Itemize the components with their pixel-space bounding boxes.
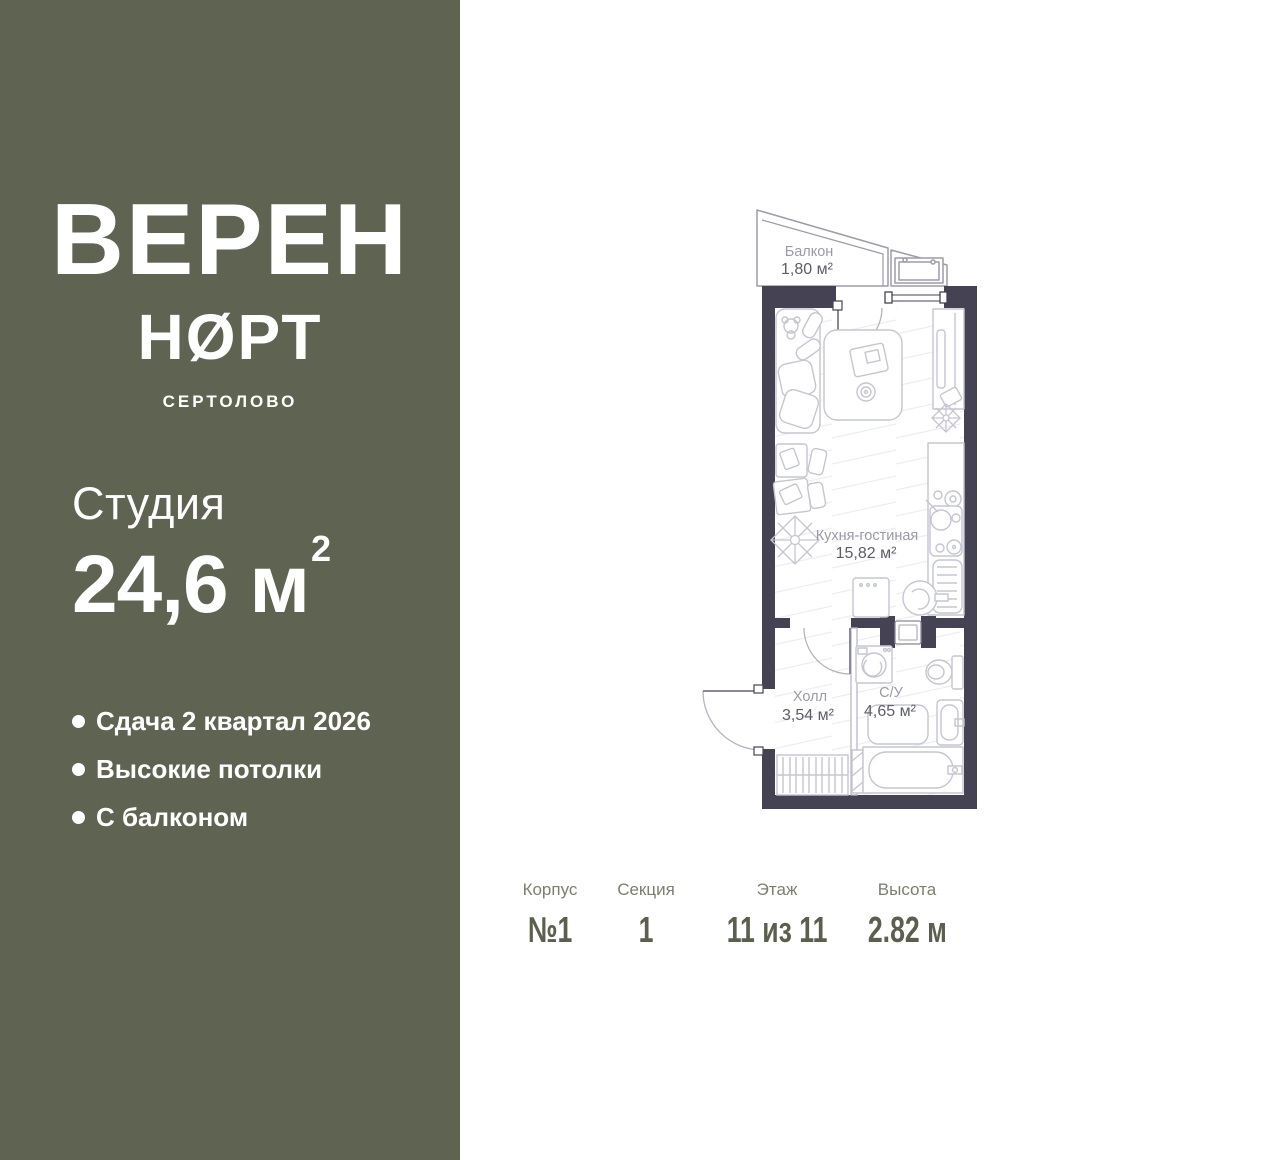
feature-item: С балконом <box>72 802 371 833</box>
bullet-dot-icon <box>72 715 85 728</box>
feature-text: Высокие потолки <box>96 754 322 785</box>
info-label: Высота <box>822 880 992 900</box>
unit-area: 24,6 м2 <box>72 538 330 632</box>
logo-city: СЕРТОЛОВО <box>0 393 460 410</box>
unit-area-value: 24,6 м <box>72 539 309 630</box>
furniture-hall-wardrobe <box>777 755 848 795</box>
room-name-balcony: Балкон <box>785 244 834 260</box>
feature-text: С балконом <box>96 802 248 833</box>
feature-list: Сдача 2 квартал 2026 Высокие потолки С б… <box>72 706 371 850</box>
unit-area-sup: 2 <box>311 528 330 569</box>
entrance-door-arc <box>703 691 762 750</box>
room-name-kitchen: Кухня-гостиная <box>816 528 919 544</box>
room-name-hall: Холл <box>793 689 827 705</box>
info-value: 2.82 м <box>822 909 992 951</box>
bullet-dot-icon <box>72 763 85 776</box>
unit-summary: Студия 24,6 м2 <box>72 478 330 632</box>
brand-logo: ВЕРЕН НØРТ СЕРТОЛОВО <box>0 190 460 410</box>
bullet-dot-icon <box>72 811 85 824</box>
room-area-bathroom: 4,65 м² <box>864 703 917 720</box>
feature-text: Сдача 2 квартал 2026 <box>96 706 371 737</box>
room-area-hall: 3,54 м² <box>782 707 835 724</box>
brand-sidebar: ВЕРЕН НØРТ СЕРТОЛОВО Студия 24,6 м2 Сдач… <box>0 0 460 1160</box>
room-area-kitchen: 15,82 м² <box>836 545 897 562</box>
unit-type: Студия <box>72 478 330 530</box>
window <box>885 292 947 303</box>
feature-item: Сдача 2 квартал 2026 <box>72 706 371 737</box>
floor-plan: Балкон 1,80 м² Кухня-гостиная 15,82 м² Х… <box>695 200 987 815</box>
room-area-balcony: 1,80 м² <box>781 261 834 278</box>
apartment-card[interactable]: ВЕРЕН НØРТ СЕРТОЛОВО Студия 24,6 м2 Сдач… <box>0 0 1280 1160</box>
info-height: Высота 2.82 м <box>822 880 992 951</box>
feature-item: Высокие потолки <box>72 754 371 785</box>
logo-line-nort: НØРТ <box>0 305 460 369</box>
logo-line-veren: ВЕРЕН <box>0 190 460 291</box>
room-name-bathroom: С/У <box>879 685 904 701</box>
